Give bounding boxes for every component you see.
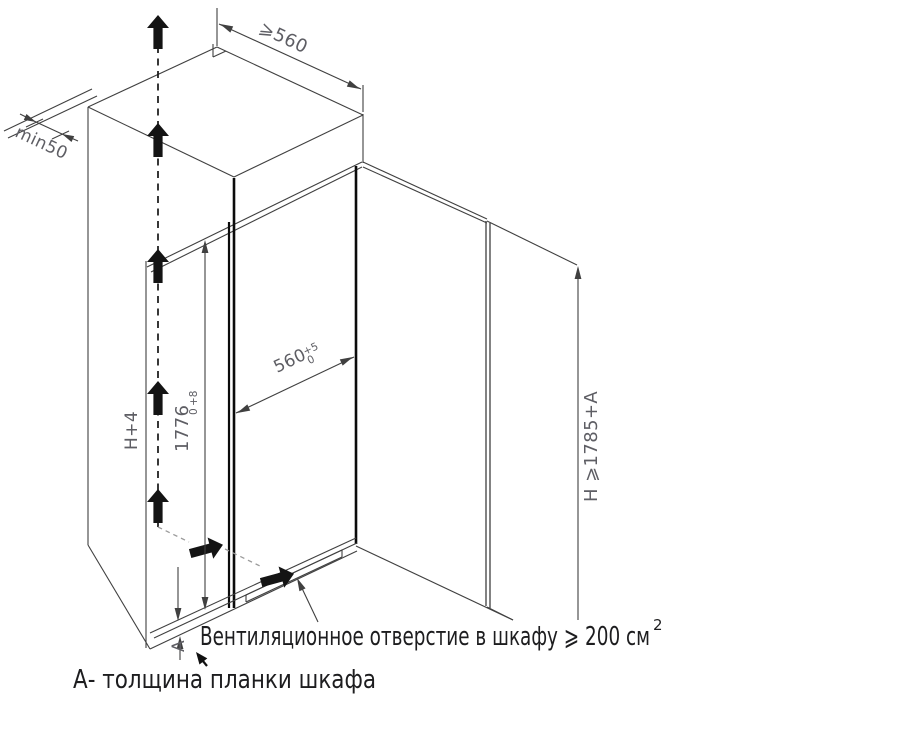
airflow-arrow-up-4	[147, 381, 169, 415]
inner-height-tol-plus: +8	[188, 391, 200, 406]
ventilation-leader	[294, 577, 318, 622]
top-depth-label: ⩾560	[256, 17, 311, 58]
airflow	[147, 15, 297, 593]
airflow-arrow-up-5	[147, 489, 169, 523]
top-cabinet-box	[88, 44, 363, 177]
dim-inner-width: 560 +5 0	[236, 339, 355, 416]
airflow-arrow-up-2	[147, 123, 169, 157]
wall-gap-label: min50	[12, 122, 71, 164]
ventilation-slot	[246, 550, 342, 602]
plank-note: А- толщина планки шкафа	[73, 665, 376, 695]
plank-thickness-letter: А	[169, 640, 189, 652]
inner-height-tol-minus: 0	[188, 408, 200, 415]
inner-width-tol-minus: 0	[306, 353, 317, 367]
niche-height-label: H+4	[122, 411, 142, 450]
ventilation-note: Вентиляционное отверстие в шкафу ⩾ 200 с…	[200, 622, 650, 652]
right-panel	[363, 162, 577, 620]
diagram-canvas: min50 ⩾560	[0, 0, 919, 733]
dim-niche-height: H+4	[122, 411, 142, 450]
dim-top-depth: ⩾560	[217, 8, 363, 112]
total-height-label: H ⩾1785+А	[581, 391, 602, 502]
dim-total-height: H ⩾1785+А	[575, 266, 602, 620]
airflow-arrow-up-1	[147, 15, 169, 49]
dim-wall-gap: min50	[12, 114, 78, 164]
airflow-arrow-base-1	[187, 534, 226, 564]
ventilation-note-superscript: 2	[653, 616, 663, 634]
installation-diagram: min50 ⩾560	[0, 0, 919, 733]
